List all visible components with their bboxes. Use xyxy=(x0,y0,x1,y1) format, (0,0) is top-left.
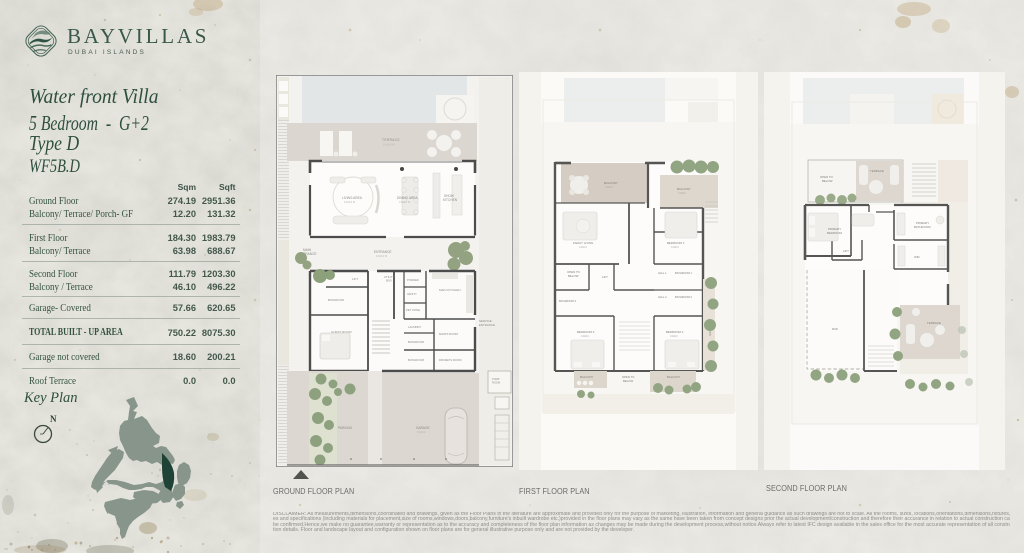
svg-text:0.0x0.0: 0.0x0.0 xyxy=(678,192,687,195)
svg-text:BEDROOM: BEDROOM xyxy=(827,231,843,235)
svg-text:BATHROOM: BATHROOM xyxy=(328,298,345,302)
svg-text:LIVING AREA: LIVING AREA xyxy=(342,196,363,200)
svg-text:GARAGE: GARAGE xyxy=(416,426,430,430)
svg-text:ROF: ROF xyxy=(832,327,838,331)
svg-text:0.0x0.0: 0.0x0.0 xyxy=(671,246,680,249)
svg-text:BEDROOM 1: BEDROOM 1 xyxy=(667,241,685,245)
svg-text:LIFT: LIFT xyxy=(352,277,358,281)
svg-text:BATHROOM 3: BATHROOM 3 xyxy=(559,299,577,303)
svg-text:DRIVER'S ROOM: DRIVER'S ROOM xyxy=(439,358,462,362)
svg-text:ROOM: ROOM xyxy=(492,381,500,385)
svg-text:BALCONY: BALCONY xyxy=(677,187,691,191)
svg-text:HALL 1: HALL 1 xyxy=(658,271,667,275)
svg-text:BALCONY: BALCONY xyxy=(604,181,618,185)
svg-text:0.0x0.0: 0.0x0.0 xyxy=(417,431,426,434)
svg-text:BATHROOM 1: BATHROOM 1 xyxy=(675,271,693,275)
svg-text:BATHROOM: BATHROOM xyxy=(914,225,931,229)
svg-text:0.0x0.0: 0.0x0.0 xyxy=(579,246,588,249)
svg-text:BEDROOM 3: BEDROOM 3 xyxy=(577,330,595,334)
svg-text:0.0x0.0 M: 0.0x0.0 M xyxy=(399,201,410,204)
svg-text:BOX: BOX xyxy=(386,279,392,283)
svg-text:MAID'S ROOM: MAID'S ROOM xyxy=(439,332,459,336)
svg-text:PARKING: PARKING xyxy=(338,426,353,430)
svg-text:POWDER: POWDER xyxy=(407,278,419,282)
svg-text:KITCHEN: KITCHEN xyxy=(443,198,458,202)
svg-text:0.0x0.0: 0.0x0.0 xyxy=(581,335,590,338)
svg-text:HALL 2: HALL 2 xyxy=(658,295,667,299)
svg-text:0.0x0.0 M: 0.0x0.0 M xyxy=(383,143,394,147)
svg-text:WID: WID xyxy=(914,255,920,259)
svg-text:0.0x0.0: 0.0x0.0 xyxy=(605,186,614,189)
svg-text:TERRACE: TERRACE xyxy=(382,138,400,142)
svg-text:0.0x0.0 M: 0.0x0.0 M xyxy=(376,255,387,258)
svg-text:BATHROOM: BATHROOM xyxy=(408,358,425,362)
svg-text:TERRACE: TERRACE xyxy=(870,169,884,173)
svg-text:BELOW: BELOW xyxy=(623,379,633,383)
svg-text:VANITY: VANITY xyxy=(407,292,417,296)
svg-text:BEDROOM 2: BEDROOM 2 xyxy=(666,330,684,334)
svg-text:DINING AREA: DINING AREA xyxy=(397,196,418,200)
svg-text:N: N xyxy=(50,414,57,424)
svg-text:MAIN KITCHEN: MAIN KITCHEN xyxy=(439,288,461,292)
svg-text:BALCONY: BALCONY xyxy=(667,375,681,379)
svg-text:FAMILY LIVING: FAMILY LIVING xyxy=(573,241,594,245)
svg-text:LAUNDRY: LAUNDRY xyxy=(408,325,421,329)
svg-text:LIFT: LIFT xyxy=(602,275,608,279)
svg-text:LIFT: LIFT xyxy=(843,249,849,253)
svg-text:BATHROOM: BATHROOM xyxy=(408,340,425,344)
svg-text:BELOW: BELOW xyxy=(568,274,579,278)
svg-text:0.0x0.0: 0.0x0.0 xyxy=(670,335,679,338)
svg-text:ENTRANCE: ENTRANCE xyxy=(479,323,495,327)
svg-text:BALCONY: BALCONY xyxy=(580,375,594,379)
svg-text:BELOW: BELOW xyxy=(822,179,833,183)
svg-text:TERRACE: TERRACE xyxy=(927,321,941,325)
svg-text:0.0x0.0 M: 0.0x0.0 M xyxy=(344,201,355,204)
svg-text:BATHROOM 2: BATHROOM 2 xyxy=(675,295,693,299)
svg-text:ENTRANCE: ENTRANCE xyxy=(374,250,392,254)
svg-text:PET ZONE: PET ZONE xyxy=(406,308,420,312)
svg-text:PUMP: PUMP xyxy=(492,377,500,381)
